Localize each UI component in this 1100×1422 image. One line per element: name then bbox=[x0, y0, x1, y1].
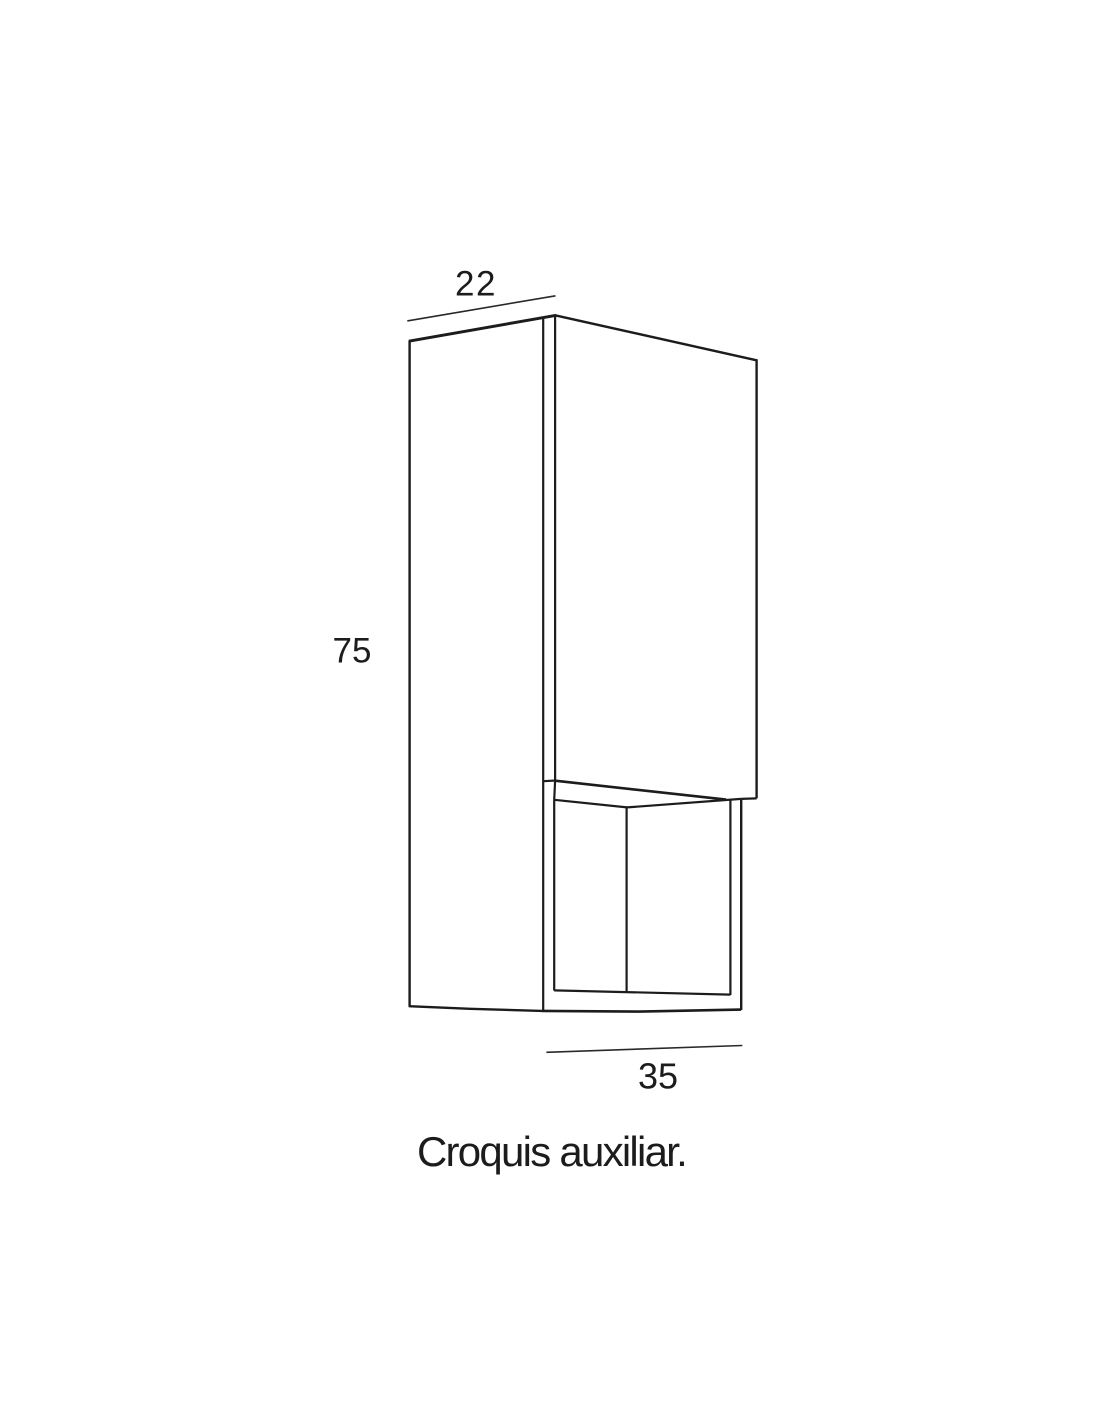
svg-text:Croquis auxiliar.: Croquis auxiliar. bbox=[417, 1128, 686, 1175]
svg-text:75: 75 bbox=[333, 632, 372, 671]
svg-text:35: 35 bbox=[638, 1056, 678, 1097]
svg-text:22: 22 bbox=[455, 265, 497, 304]
